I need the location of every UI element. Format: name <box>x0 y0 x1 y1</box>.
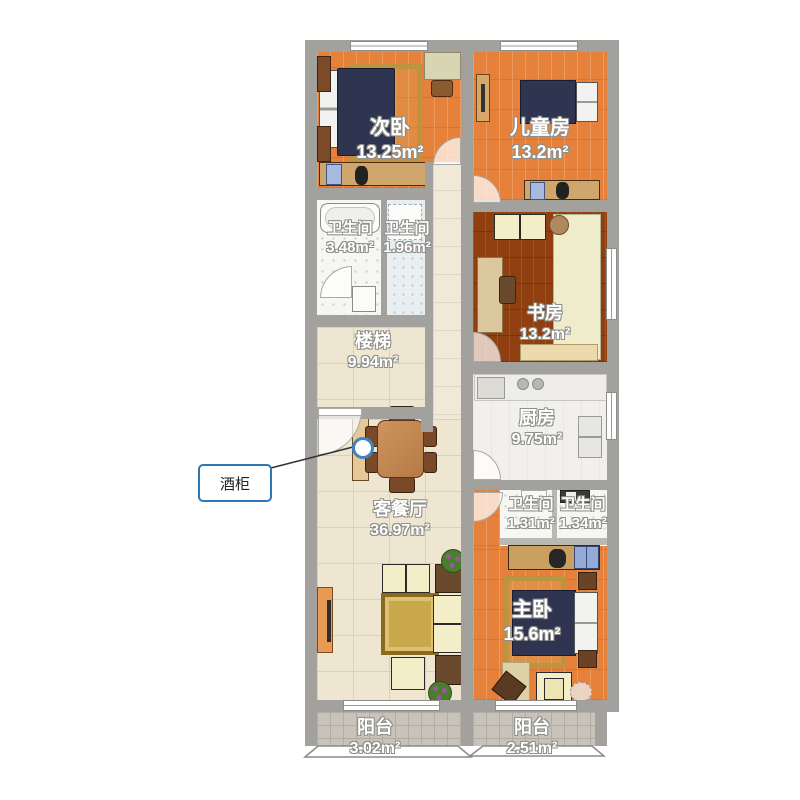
room-name: 厨房 <box>487 407 587 430</box>
stove-burner <box>517 378 529 390</box>
dining-chair[interactable] <box>389 477 415 493</box>
room-area: 15.6m² <box>486 623 578 646</box>
chair[interactable] <box>326 164 342 185</box>
nightstand[interactable] <box>578 650 597 668</box>
room-name: 卫生间 <box>372 220 442 239</box>
tv <box>481 84 485 112</box>
room-name: 主卧 <box>486 598 578 623</box>
stove-burner <box>532 378 544 390</box>
room-area: 13.25m² <box>330 141 450 164</box>
wardrobe[interactable] <box>317 126 331 162</box>
window-top-left[interactable] <box>350 41 428 51</box>
sofa[interactable] <box>494 214 546 240</box>
armchair-seat <box>544 678 564 700</box>
room-label-bath-mid-right: 卫生间 1.34m² <box>551 496 615 534</box>
room-label-living-dining: 客餐厅 36.97m² <box>340 498 460 541</box>
room-name: 客餐厅 <box>340 498 460 521</box>
chair[interactable] <box>530 182 545 200</box>
room-area: 9.94m² <box>323 353 423 373</box>
wardrobe[interactable] <box>317 56 331 92</box>
room-area: 9.75m² <box>487 430 587 450</box>
room-area: 13.2m² <box>480 141 600 164</box>
room-name: 阳台 <box>325 716 425 739</box>
wall-outer-left <box>305 40 317 746</box>
floor-corridor <box>433 162 461 419</box>
room-area: 1.96m² <box>372 239 442 258</box>
side-table-round[interactable] <box>549 215 569 235</box>
chair[interactable] <box>499 276 516 304</box>
wall-central <box>461 40 473 746</box>
cabinet-blue[interactable] <box>574 546 599 569</box>
room-name: 阳台 <box>482 716 582 739</box>
sofa[interactable] <box>433 595 462 653</box>
sofa[interactable] <box>382 564 430 593</box>
wall-bedroom-bath <box>317 188 433 200</box>
room-name: 儿童房 <box>480 116 600 141</box>
window-study[interactable] <box>606 248 617 320</box>
dining-table[interactable] <box>377 420 424 478</box>
wall-kitchen-bath <box>473 480 607 490</box>
wall-corridor <box>425 162 433 419</box>
ottoman[interactable] <box>570 682 592 702</box>
room-name: 楼梯 <box>323 330 423 353</box>
wall-bath-bottom <box>317 315 433 327</box>
chair[interactable] <box>355 166 368 185</box>
wine-cabinet-callout[interactable]: 酒柜 <box>198 464 272 502</box>
rug[interactable] <box>381 593 439 655</box>
room-label-master-bedroom: 主卧 15.6m² <box>486 598 578 646</box>
room-label-study: 书房 13.2m² <box>495 302 595 345</box>
wall-study-kitchen <box>473 362 607 374</box>
window-top-right[interactable] <box>500 41 578 51</box>
wall-stub <box>421 419 433 432</box>
nightstand[interactable] <box>578 572 597 590</box>
armchair[interactable] <box>391 657 425 690</box>
room-area: 3.02m² <box>325 739 425 759</box>
chair[interactable] <box>549 549 566 568</box>
wall-balcony-right <box>595 712 607 746</box>
room-label-bath-top-right: 卫生间 1.96m² <box>372 220 442 258</box>
room-label-stairs: 楼梯 9.94m² <box>323 330 423 373</box>
wine-cabinet-marker[interactable] <box>352 437 374 459</box>
room-label-kitchen: 厨房 9.75m² <box>487 407 587 450</box>
room-name: 次卧 <box>330 116 450 141</box>
wall-outer-right <box>607 40 619 712</box>
room-label-secondary-bedroom: 次卧 13.25m² <box>330 116 450 164</box>
room-label-balcony-right: 阳台 2.51m² <box>482 716 582 759</box>
window-balcony-right[interactable] <box>495 700 577 711</box>
washbasin[interactable] <box>352 286 376 312</box>
dining-chair[interactable] <box>423 452 437 473</box>
window-kitchen[interactable] <box>606 392 617 440</box>
room-area: 13.2m² <box>495 325 595 345</box>
sink[interactable] <box>477 377 505 399</box>
room-area: 1.34m² <box>551 515 615 534</box>
tv <box>327 600 331 642</box>
chair[interactable] <box>431 80 453 97</box>
desk[interactable] <box>424 52 461 80</box>
window-balcony-left[interactable] <box>343 700 440 711</box>
wall-bath-divider <box>381 200 387 315</box>
room-name: 书房 <box>495 302 595 325</box>
room-label-kids-room: 儿童房 13.2m² <box>480 116 600 164</box>
callout-label: 酒柜 <box>220 473 250 494</box>
room-area: 2.51m² <box>482 739 582 759</box>
room-label-balcony-left: 阳台 3.02m² <box>325 716 425 759</box>
bench[interactable] <box>520 344 598 361</box>
room-name: 卫生间 <box>551 496 615 515</box>
floor-plan-canvas: 次卧 13.25m² 儿童房 13.2m² 卫生间 3.48m² 卫生间 1.9… <box>0 0 800 800</box>
room-area: 36.97m² <box>340 521 460 541</box>
chair[interactable] <box>556 182 569 199</box>
door-entry-leaf[interactable] <box>318 408 362 416</box>
wall-bath-master <box>500 538 607 545</box>
